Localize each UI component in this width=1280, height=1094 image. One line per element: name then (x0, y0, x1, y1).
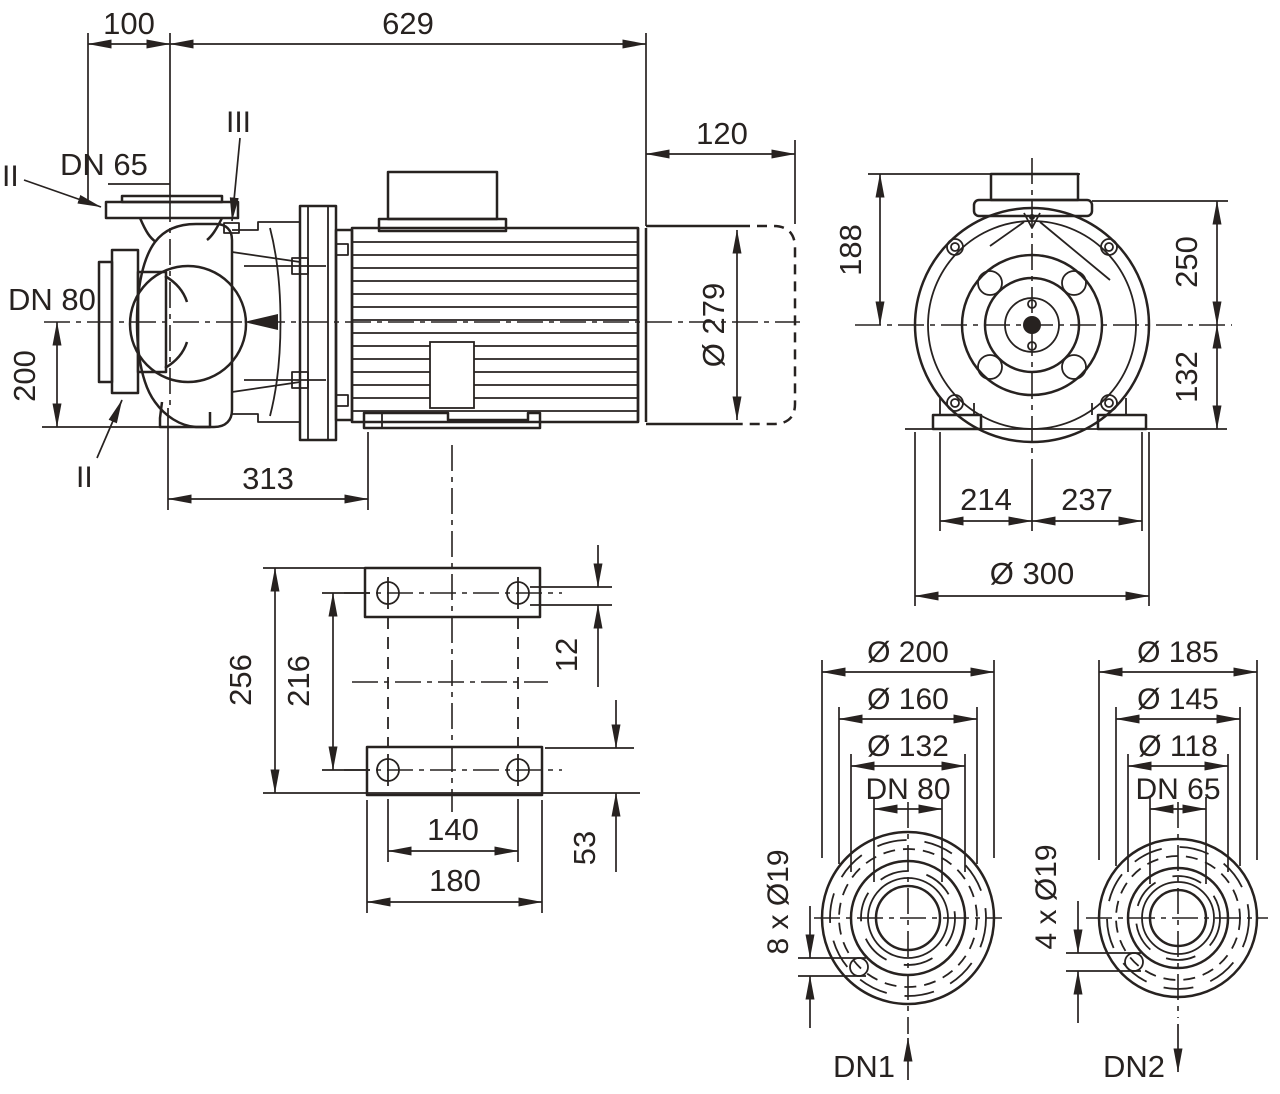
dim-dn65-bolt-holes: 4 x Ø19 (1030, 844, 1141, 1023)
dim-214-label: 214 (960, 482, 1012, 517)
label-discharge-dn65-text: DN 65 (60, 147, 148, 182)
dim-bottom-offset-53: 53 (545, 700, 634, 872)
dim-overall-depth-256: 256 (223, 568, 275, 793)
section-ii-bottom-text: II (76, 461, 93, 494)
dim-237-label: 237 (1061, 482, 1113, 517)
dim-160dia-label: Ø 160 (867, 683, 949, 716)
dim-8xd19-label: 8 x Ø19 (762, 849, 795, 954)
dim-dn65-label: DN 65 (1135, 773, 1220, 806)
dim-250-label: 250 (1169, 236, 1204, 288)
dim-132-label: 132 (1169, 351, 1204, 403)
dim-box-height-188: 188 (833, 174, 1080, 325)
dim-dn80-label: DN 80 (865, 773, 950, 806)
port-label-dn2: DN2 (1103, 1024, 1178, 1084)
side-view: 100 629 120 Ø 279 200 (2, 6, 800, 510)
dim-lower-height-132: 132 (1169, 325, 1217, 429)
pump-dimensional-drawing-page: 100 629 120 Ø 279 200 (0, 0, 1280, 1089)
foot-plan-view: 256 216 12 53 140 (223, 445, 640, 913)
flange-view-dn80: Ø 200 Ø 160 Ø 132 DN 80 8 x Ø19 (762, 636, 1002, 1084)
port-dn2-text: DN2 (1103, 1049, 1165, 1084)
dim-hole-span-140: 140 (388, 799, 518, 862)
dim-motor-diameter-label: Ø 279 (696, 283, 731, 367)
port-dn1-text: DN1 (833, 1049, 895, 1084)
discharge-flange (106, 196, 238, 242)
section-ii-top-text: II (2, 160, 19, 193)
dim-pump-length-313-label: 313 (242, 461, 294, 496)
section-label-ii-bottom: II (76, 400, 122, 494)
terminal-box (388, 172, 497, 219)
dim-fan-cover-120-label: 120 (696, 116, 748, 151)
dim-118dia-label: Ø 118 (1138, 730, 1218, 763)
dim-motor-diameter: Ø 279 (696, 230, 737, 420)
dim-feet-214-237: 214 237 (940, 432, 1142, 531)
dim-top-offset-12: 12 (530, 545, 612, 687)
dim-185dia-label: Ø 185 (1137, 636, 1219, 669)
dim-53-label: 53 (567, 831, 602, 865)
volute-casing (130, 224, 246, 427)
motor-foot (364, 413, 540, 428)
detail-iii-text: III (226, 106, 251, 139)
motor-flange-plate (300, 206, 352, 440)
dim-length-629-label: 629 (382, 6, 434, 41)
dim-suction-height-200: 200 (7, 322, 164, 427)
flow-direction-arrow-icon (244, 314, 278, 330)
dim-188-label: 188 (833, 224, 868, 276)
port-label-dn1: DN1 (833, 1038, 908, 1084)
dim-140-label: 140 (427, 812, 479, 847)
label-discharge-dn65: DN 65 (60, 147, 170, 184)
dim-200dia-label: Ø 200 (867, 636, 949, 669)
dim-suction-height-200-label: 200 (7, 350, 42, 402)
dim-fan-cover-120: 120 (646, 116, 795, 224)
motor-cooling-fins (352, 242, 638, 411)
flange-view-dn65: Ø 185 Ø 145 Ø 118 DN 65 4 x Ø19 (1030, 636, 1268, 1084)
dim-145dia-label: Ø 145 (1137, 683, 1219, 716)
dim-216-label: 216 (281, 655, 316, 707)
dim-180-label: 180 (429, 863, 481, 898)
dim-300-label: Ø 300 (990, 556, 1074, 591)
dim-pump-length-313: 313 (168, 408, 368, 510)
label-suction-dn80-text: DN 80 (8, 282, 96, 317)
dim-upper-height-250: 250 (1092, 201, 1228, 325)
motor-nameplate (430, 342, 474, 408)
front-terminal-box (974, 174, 1092, 216)
front-view: 188 250 132 214 237 Ø 300 (833, 158, 1232, 606)
dim-offset-100-label: 100 (103, 6, 155, 41)
dim-12-label: 12 (549, 638, 584, 672)
dim-132dia-label: Ø 132 (867, 730, 949, 763)
drawing-canvas: 100 629 120 Ø 279 200 (0, 0, 1280, 1089)
motor-body (352, 172, 646, 428)
dim-4xd19-label: 4 x Ø19 (1030, 844, 1063, 949)
dim-dn80-bolt-holes: 8 x Ø19 (762, 849, 866, 1028)
dim-256-label: 256 (223, 654, 258, 706)
